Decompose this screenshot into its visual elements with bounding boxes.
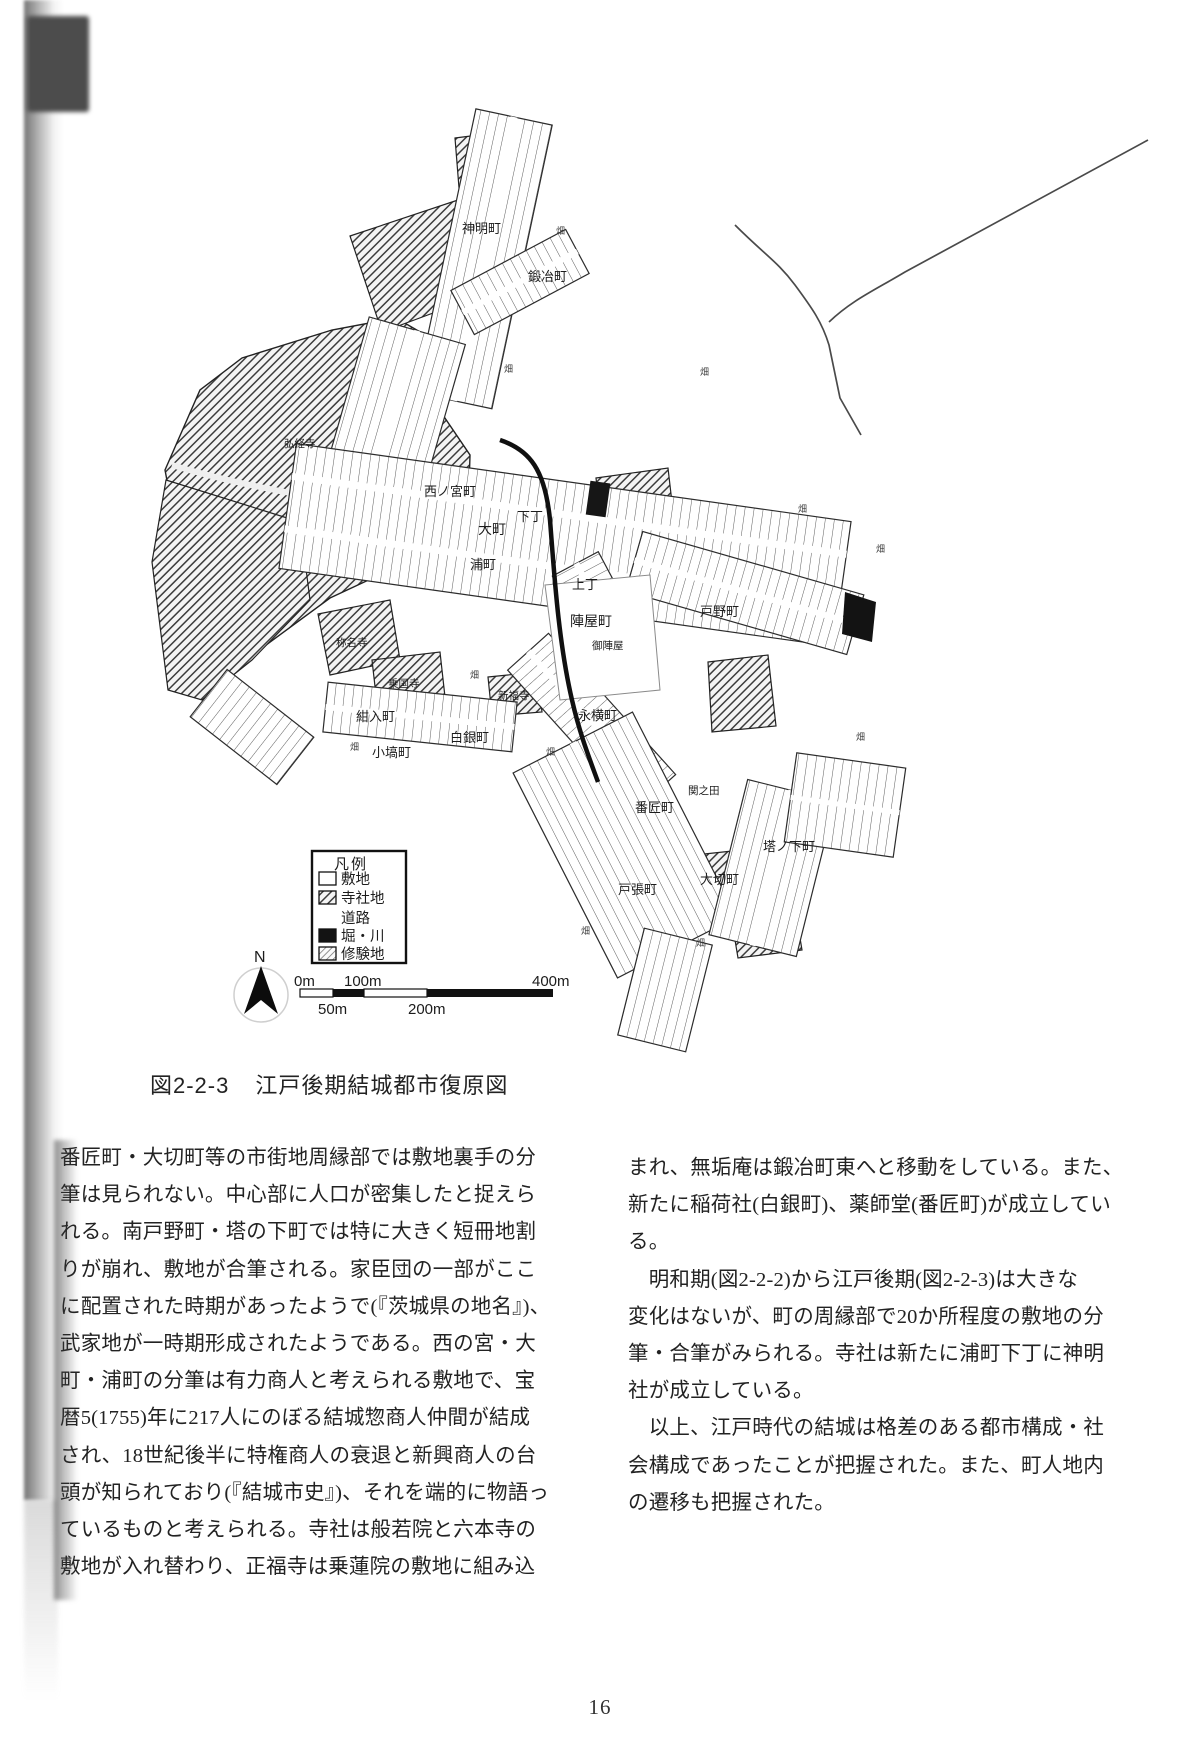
map-label: 戸張町 xyxy=(618,882,657,897)
text-line: 以上、江戸時代の結城は格差のある都市構成・社 xyxy=(628,1410,1120,1447)
map-label-field: 畑 xyxy=(350,741,359,752)
text-line: ているものと考えられる。寺社は般若院と六本寺の xyxy=(60,1512,552,1549)
map-label: 大町 xyxy=(478,521,506,537)
map-label: 大切町 xyxy=(700,872,739,887)
map-label: 上丁 xyxy=(572,577,598,592)
text-line: 社が成立している。 xyxy=(628,1373,1120,1410)
map-label: 浦町 xyxy=(470,557,496,572)
map-label-field: 畑 xyxy=(470,669,479,680)
river-line-main xyxy=(735,225,861,435)
text-line: に配置された時期があったようで(『茨城県の地名』)、 xyxy=(60,1289,552,1326)
text-line: る。 xyxy=(628,1224,1120,1261)
scanned-page: 神明町 鍛冶町 西ノ宮町 大町 下丁 浦町 上丁 陣屋町 御陣屋 戸野町 永横町… xyxy=(0,0,1200,1738)
map-label: 弘経寺 xyxy=(284,437,316,450)
river-line-branch xyxy=(829,140,1148,322)
map-label: 西ノ宮町 xyxy=(424,484,476,499)
text-line: 変化はないが、町の周縁部で20か所程度の敷地の分 xyxy=(628,1299,1120,1336)
map-label: 下丁 xyxy=(517,509,543,524)
map-label-field: 畑 xyxy=(700,366,709,377)
map-label: 白銀町 xyxy=(450,730,489,745)
text-line: 暦5(1755)年に217人にのぼる結城惣商人仲間が結成 xyxy=(60,1400,552,1437)
moat-black-area xyxy=(842,592,876,642)
map-label: 乗国寺 xyxy=(388,678,420,690)
map-label: 鍛冶町 xyxy=(528,269,567,284)
scale-seg-50-100 xyxy=(333,989,364,997)
map-label-field: 畑 xyxy=(798,503,807,514)
legend-label: 寺社地 xyxy=(341,890,385,907)
scan-gutter-fade xyxy=(24,1500,58,1700)
compass-north-label: N xyxy=(254,949,266,966)
text-column-left: 番匠町・大切町等の市街地周縁部では敷地裏手の分 筆は見られない。中心部に人口が密… xyxy=(60,1140,552,1586)
text-line: れる。南戸野町・塔の下町では特に大きく短冊地割 xyxy=(60,1214,552,1251)
map-label: 称名寺 xyxy=(336,636,368,649)
text-line: 町・浦町の分筆は有力商人と考えられる敷地で、宝 xyxy=(60,1363,552,1400)
text-line: 頭が知られており(『結城市史』)、それを端的に物語っ xyxy=(60,1475,552,1512)
map-label: 御陣屋 xyxy=(592,639,624,652)
temple-area-east-large xyxy=(708,655,776,732)
map-label-field: 畑 xyxy=(581,925,590,936)
text-line: 明和期(図2-2-2)から江戸後期(図2-2-3)は大きな xyxy=(628,1262,1120,1299)
map-label: 関之田 xyxy=(688,784,720,797)
text-line: 筆は見られない。中心部に人口が密集したと捉えら xyxy=(60,1177,552,1214)
map-label: 戸野町 xyxy=(700,604,739,619)
legend-title: 凡例 xyxy=(334,856,368,873)
map-label: 永横町 xyxy=(578,708,617,723)
text-line: まれ、無垢庵は鍛冶町東へと移動をしている。また、 xyxy=(628,1150,1120,1187)
map-label-field: 畑 xyxy=(504,363,513,374)
legend-swatch-shugen xyxy=(319,947,336,960)
page-number: 16 xyxy=(0,1695,1200,1720)
legend-swatch-jisha xyxy=(319,891,336,904)
legend-label: 道路 xyxy=(341,910,370,927)
legend-label: 敷地 xyxy=(341,871,370,888)
text-line: 敷地が入れ替わり、正福寺は乗蓮院の敷地に組み込 xyxy=(60,1549,552,1586)
scale-seg-0-50 xyxy=(300,989,333,997)
scale-label-200m: 200m xyxy=(408,1001,446,1018)
map-label: 番匠町 xyxy=(635,800,674,815)
map-label-field: 畑 xyxy=(546,746,555,757)
scale-seg-200-400 xyxy=(427,989,553,997)
compass: N xyxy=(234,949,288,1022)
scale-label-0m: 0m xyxy=(294,973,315,990)
figure-title: 江戸後期結城都市復原図 xyxy=(255,1073,508,1098)
scale-bar: 0m 100m 400m 50m 200m xyxy=(294,973,570,1018)
text-line: 会構成であったことが把握された。また、町人地内 xyxy=(628,1448,1120,1485)
map-label-field: 畑 xyxy=(876,543,885,554)
text-line: りが崩れ、敷地が合筆される。家臣団の一部がここ xyxy=(60,1252,552,1289)
text-line: 筆・合筆がみられる。寺社は新たに浦町下丁に神明 xyxy=(628,1336,1120,1373)
figure-caption: 図2-2-3江戸後期結城都市復原図 xyxy=(150,1068,508,1100)
text-line: 番匠町・大切町等の市街地周縁部では敷地裏手の分 xyxy=(60,1140,552,1177)
map-label: 紺入町 xyxy=(356,709,395,724)
scale-label-50m: 50m xyxy=(318,1001,347,1018)
map-label: 神明町 xyxy=(462,221,501,236)
legend-label: 堀・川 xyxy=(341,928,385,945)
map-label: 小塙町 xyxy=(372,745,411,760)
map-label: 塔ノ下町 xyxy=(763,839,815,854)
map-legend: 凡例 敷地 寺社地 道路 堀・川 修験地 xyxy=(312,851,406,963)
legend-swatch-hori xyxy=(319,929,336,942)
text-column-right: まれ、無垢庵は鍛冶町東へと移動をしている。また、 新たに稲荷社(白銀町)、薬師堂… xyxy=(628,1150,1120,1522)
map-label: 新福寺 xyxy=(498,689,530,702)
river-lines xyxy=(735,140,1148,435)
compass-arrow xyxy=(244,966,278,1014)
text-line: 武家地が一時期形成されたようである。西の宮・大 xyxy=(60,1326,552,1363)
scale-seg-100-200 xyxy=(364,989,427,997)
map-label: 陣屋町 xyxy=(570,613,612,629)
scale-label-400m: 400m xyxy=(532,973,570,990)
text-line: され、18世紀後半に特権商人の衰退と新興商人の台 xyxy=(60,1438,552,1475)
map-label-field: 畑 xyxy=(696,937,705,948)
text-line: の遷移も把握された。 xyxy=(628,1485,1120,1522)
scale-label-100m: 100m xyxy=(344,973,382,990)
text-line: 新たに稲荷社(白銀町)、薬師堂(番匠町)が成立してい xyxy=(628,1187,1120,1224)
map-label-field: 畑 xyxy=(556,225,565,236)
figure-number: 図2-2-3 xyxy=(150,1073,229,1098)
map-label-field: 畑 xyxy=(856,731,865,742)
legend-label: 修験地 xyxy=(341,946,385,963)
legend-swatch-shikichi xyxy=(319,872,336,885)
historic-city-map: 神明町 鍛冶町 西ノ宮町 大町 下丁 浦町 上丁 陣屋町 御陣屋 戸野町 永横町… xyxy=(0,0,1200,1120)
